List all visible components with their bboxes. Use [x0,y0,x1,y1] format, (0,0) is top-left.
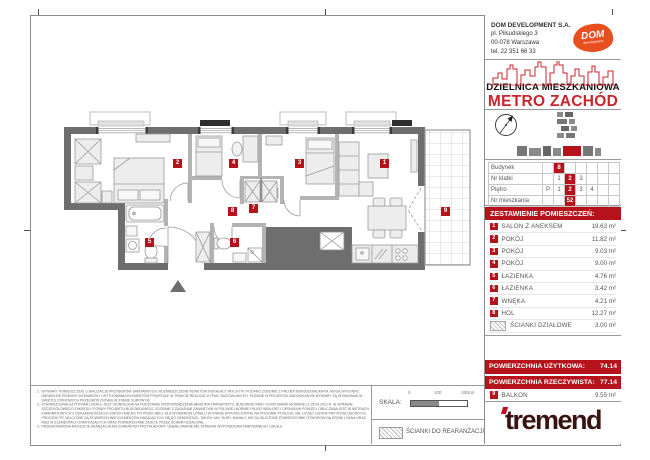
shaft [320,232,344,250]
rearrangement-label: ŚCIANKI DO REARANŻACJI [406,429,484,435]
skyline-graphic [485,61,621,87]
legend-box: ŚCIANKI DO REARANŻACJI [372,419,484,445]
compass-icon [496,115,517,136]
room-marker-4: 4 [229,159,238,168]
unit-info-table: Budynek 8 Nr klatki 1 2 3 Piętro P 1 2 3… [488,162,620,207]
room-marker-7: 7 [249,204,258,213]
balcony [425,130,470,265]
company-address-2: 00-078 Warszawa [491,39,571,48]
room-number-badge: 5 [490,273,498,281]
room-number-badge: 1 [490,223,498,231]
orientation-block [485,109,621,159]
entrance-arrow [170,280,186,292]
room-row: 4POKÓJ9.00 m² [490,258,616,270]
room-marker-1: 1 [380,159,389,168]
dom-logo-subtext: development [583,40,603,46]
room-marker-8: 8 [228,207,237,216]
room-number-badge: 7 [490,297,498,305]
room-marker-3: 3 [295,159,304,168]
partition-walls-row: ŚCIANKI DZIAŁOWE3.00 m² [490,320,616,332]
room-label: ŁAZIENKA [502,273,534,280]
panel-divider [485,159,621,160]
panel-divider [485,335,621,336]
room-row: 5ŁAZIENKA4.76 m² [490,271,616,283]
room-number-badge: 6 [490,285,498,293]
partition-label: ŚCIANKI DZIAŁOWE [510,322,572,329]
room-row: 3POKÓJ9.03 m² [490,246,616,258]
disclaimer-item: 1.WYMIARY POMIESZCZEŃ, LOKALIZACJE PRZYB… [37,390,370,403]
unit-row-label: Nr mieszkania [489,196,543,207]
floorplan-page: 1 2 3 4 5 6 7 8 9 DOM DEVELOPMENT S.A. p… [0,0,650,460]
room-area: 4.76 m² [595,273,616,280]
scale-bar-filled [411,401,439,406]
scale-label: SKALA: [379,399,402,406]
actual-area-banner: POWIERZCHNIA RZECZYWISTA: 77.14 [485,376,621,390]
scale-box: SKALA: 0 100 200cm [372,385,484,419]
balcony-label: BALKON [502,392,528,399]
scale-bar [410,400,468,407]
company-phone: tel. 22 351 66 33 [491,48,571,57]
unit-staircase-selected: 2 [565,174,576,185]
room-number-badge: 8 [490,310,498,318]
room-area: 9.00 m² [595,260,616,267]
siteplan-thumbnail [517,112,601,156]
scale-bar-empty [439,401,467,406]
room-label: ŁAZIENKA [502,285,534,292]
room-area: 3.42 m² [595,285,616,292]
room-label: POKÓJ [502,260,524,267]
usable-area-value: 74.14 [600,363,617,370]
company-block: DOM DEVELOPMENT S.A. pl. Piłsudskiego 3 … [491,21,571,56]
partition-area: 3.00 m² [595,322,616,329]
dom-logo: DOM development [572,22,615,54]
room-label: WNĘKA [502,298,526,305]
disclaimer-item: 2.POWIERZCHNIA UŻYTKOWA LOKALU JEST OKRE… [37,403,370,425]
room-number-badge: 2 [490,235,498,243]
room-area: 9.03 m² [595,248,616,255]
balcony-number-badge: 9 [490,391,498,399]
actual-area-label: POWIERZCHNIA RZECZYWISTA: [489,379,595,386]
panel-divider [485,401,621,402]
room-label: POKÓJ [502,248,524,255]
info-panel: DOM DEVELOPMENT S.A. pl. Piłsudskiego 3 … [484,15,621,444]
room-area: 12.27 m² [592,310,616,317]
room-area: 11.82 m² [592,236,616,243]
room-row: 1SALON Z ANEKSEM19.63 m² [490,221,616,233]
room-marker-5: 5 [145,238,154,247]
unit-row-label: Budynek [489,163,543,174]
company-name: DOM DEVELOPMENT S.A. [491,21,571,30]
room-row: 7WNĘKA4.21 m² [490,295,616,307]
rooms-list: 1SALON Z ANEKSEM19.63 m² 2POKÓJ11.82 m² … [490,221,616,333]
project-block: DZIELNICA MIESZKANIOWA METRO ZACHÓD [485,59,621,109]
balcony-area: 9.55 m² [595,392,616,399]
unit-row-label: Nr klatki [489,174,543,185]
room-number-badge: 4 [490,260,498,268]
rearrangement-hatch-swatch [379,427,403,439]
tremend-logo-text: tremend [505,405,601,435]
room-area: 4.21 m² [595,298,616,305]
company-address-1: pl. Piłsudskiego 3 [491,30,571,39]
room-number-badge: 3 [490,248,498,256]
usable-area-banner: POWIERZCHNIA UŻYTKOWA: 74.14 [485,360,621,374]
room-label: HOL [502,310,515,317]
balcony-row: 9 BALKON 9.55 m² [490,389,616,401]
unit-building-selected: 8 [554,163,565,174]
room-marker-2: 2 [173,159,182,168]
partition-hatch-swatch [490,321,506,331]
unit-row-label: Piętro [489,185,543,196]
room-marker-6: 6 [230,238,239,247]
room-label: POKÓJ [502,236,524,243]
unit-floor-selected: 2 [565,185,576,196]
disclaimer-block: 1.WYMIARY POMIESZCZEŃ, LOKALIZACJE PRZYB… [37,390,370,430]
room-row: 2POKÓJ11.82 m² [490,233,616,245]
rooms-header: ZESTAWIENIE POMIESZCZEŃ: [485,207,621,220]
actual-area-value: 77.14 [600,379,617,386]
usable-area-label: POWIERZCHNIA UŻYTKOWA: [489,363,585,370]
room-row: 6ŁAZIENKA3.42 m² [490,283,616,295]
project-name: METRO ZACHÓD [485,93,621,111]
room-label: SALON Z ANEKSEM [502,223,563,230]
furniture [75,134,418,263]
disclaimer-item: 3.PRZEDSTAWIONA NA RZUCIE ARANŻACJA MA C… [37,426,370,430]
unit-apartment-selected: 52 [565,196,576,207]
room-area: 19.63 m² [592,223,616,230]
compass-and-siteplan [485,109,621,159]
room-marker-9: 9 [441,207,450,216]
tremend-logo: tremend [485,407,621,434]
room-row: 8HOL12.27 m² [490,308,616,320]
